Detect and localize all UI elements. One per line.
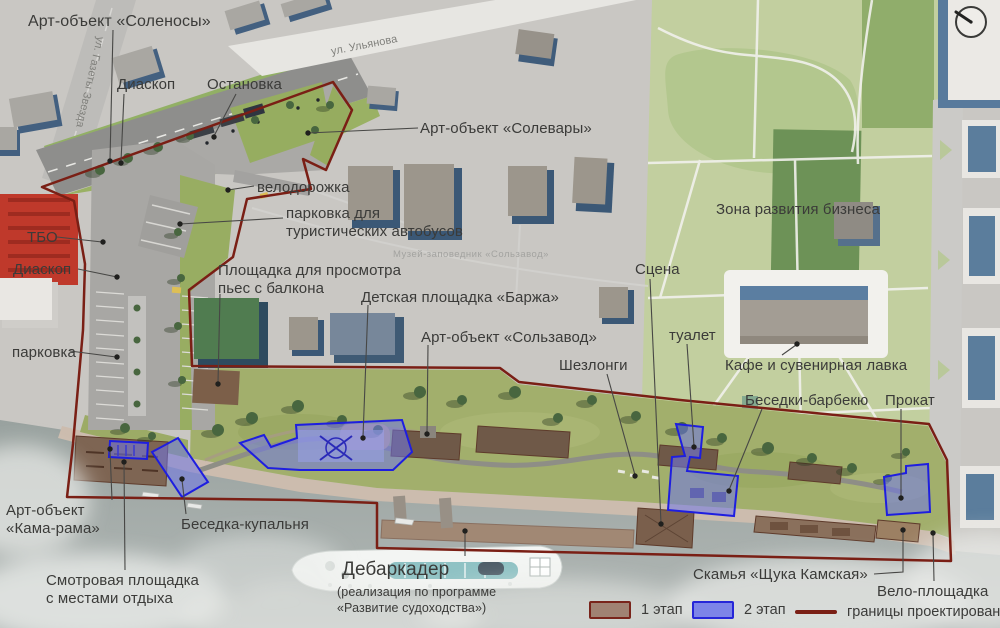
legend-stage1-label: 1 этап [641,602,683,618]
label-parkovka-bus-line1: парковка для [286,205,463,223]
label-art-solzavod: Арт-объект «Сользавод» [421,329,597,347]
label-zona-biznesa: Зона развития бизнеса [716,201,880,219]
legend-stage2-label: 2 этап [744,602,786,618]
label-debarkader-sub2: «Развитие судоходства») [337,601,486,616]
legend-stage2: 2 этап [692,601,786,619]
label-diaskop-top: Диаскоп [117,76,175,94]
label-besedka-kupalnya: Беседка-купальня [181,516,309,534]
label-art-solenosy: Арт-объект «Соленосы» [28,12,211,32]
label-smotrovaya-line1: Смотровая площадка [46,572,199,590]
label-debarkader: Дебаркадер [342,558,449,581]
label-smotrovaya-line2: с местами отдыха [46,590,199,608]
label-ostanovka: Остановка [207,76,282,94]
label-tbo: ТБО [27,229,58,247]
label-art-solevary: Арт-объект «Солевары» [420,120,592,138]
label-besedki-barbekyu: Беседки-барбекю [745,392,868,410]
label-scena: Сцена [635,261,680,279]
masterplan-map: Арт-объект «Соленосы» Диаскоп Остановка … [0,0,1000,628]
label-ploshchadka-line1: Площадка для просмотра [218,262,401,280]
label-parkovka-bus-line2: туристических автобусов [286,223,463,241]
label-smotrovaya: Смотровая площадка с местами отдыха [46,572,199,609]
label-kafe: Кафе и сувенирная лавка [725,357,907,375]
label-detskaya: Детская площадка «Баржа» [361,289,559,307]
label-skamya: Скамья «Щука Камская» [693,566,868,584]
label-kamarama: Арт-объект «Кама-рама» [6,502,100,539]
legend-stage1: 1 этап [589,601,683,619]
label-tualet: туалет [669,327,716,345]
legend-stage1-swatch [589,601,631,619]
label-museum-watermark: Музей-заповедник «Сользавод» [393,249,549,261]
label-prokat: Прокат [885,392,935,410]
label-debarkader-sub1: (реализация по программе [337,585,496,600]
label-parkovka: парковка [12,344,76,362]
legend-stage2-swatch [692,601,734,619]
label-velo-ploshchadka: Вело-площадка [877,583,988,601]
label-velodorozhka: велодорожка [257,179,350,197]
label-kamarama-line2: «Кама-рама» [6,520,100,538]
north-arrow-icon [956,7,986,37]
label-parkovka-bus: парковка для туристических автобусов [286,205,463,242]
legend-boundary-label: границы проектирования [847,604,1000,620]
label-shezlongi: Шезлонги [559,357,628,375]
legend-boundary: границы проектирования [795,604,1000,620]
label-diaskop-left: Диаскоп [13,261,71,279]
legend-boundary-swatch [795,610,837,614]
label-kamarama-line1: Арт-объект [6,502,100,520]
